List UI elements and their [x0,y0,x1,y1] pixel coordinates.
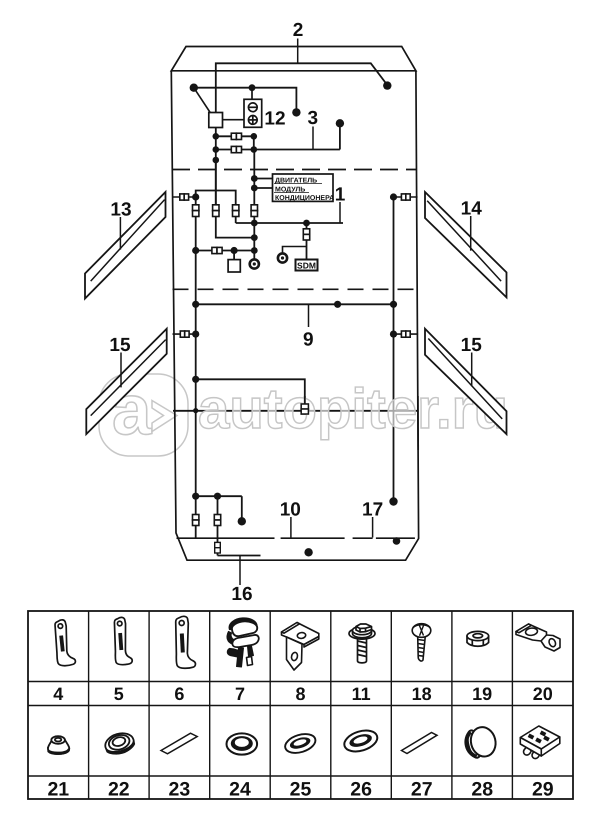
svg-text:26: 26 [350,779,372,801]
svg-text:24: 24 [229,779,251,801]
svg-text:КОНДИЦИОНЕРА: КОНДИЦИОНЕРА [275,195,334,202]
svg-text:25: 25 [290,779,312,801]
svg-text:3: 3 [308,108,319,129]
svg-text:9: 9 [303,330,314,351]
svg-text:20: 20 [533,684,553,704]
svg-text:5: 5 [114,684,124,704]
svg-text:15: 15 [109,335,131,356]
svg-text:22: 22 [108,779,130,801]
svg-text:16: 16 [231,584,252,605]
svg-text:17: 17 [362,500,383,521]
svg-text:2: 2 [293,20,304,41]
svg-text:18: 18 [412,684,432,704]
svg-text:29: 29 [532,779,554,801]
svg-text:28: 28 [471,779,493,801]
svg-text:19: 19 [472,684,492,704]
svg-text:7: 7 [235,684,245,704]
svg-text:10: 10 [280,500,301,521]
svg-text:11: 11 [352,684,371,704]
svg-text:23: 23 [169,779,191,801]
svg-text:8: 8 [295,684,305,704]
svg-text:12: 12 [264,109,285,130]
svg-text:6: 6 [174,684,184,704]
svg-text:21: 21 [47,779,69,801]
svg-text:4: 4 [53,684,63,704]
svg-text:27: 27 [411,779,433,801]
svg-text:SDM: SDM [297,260,316,270]
